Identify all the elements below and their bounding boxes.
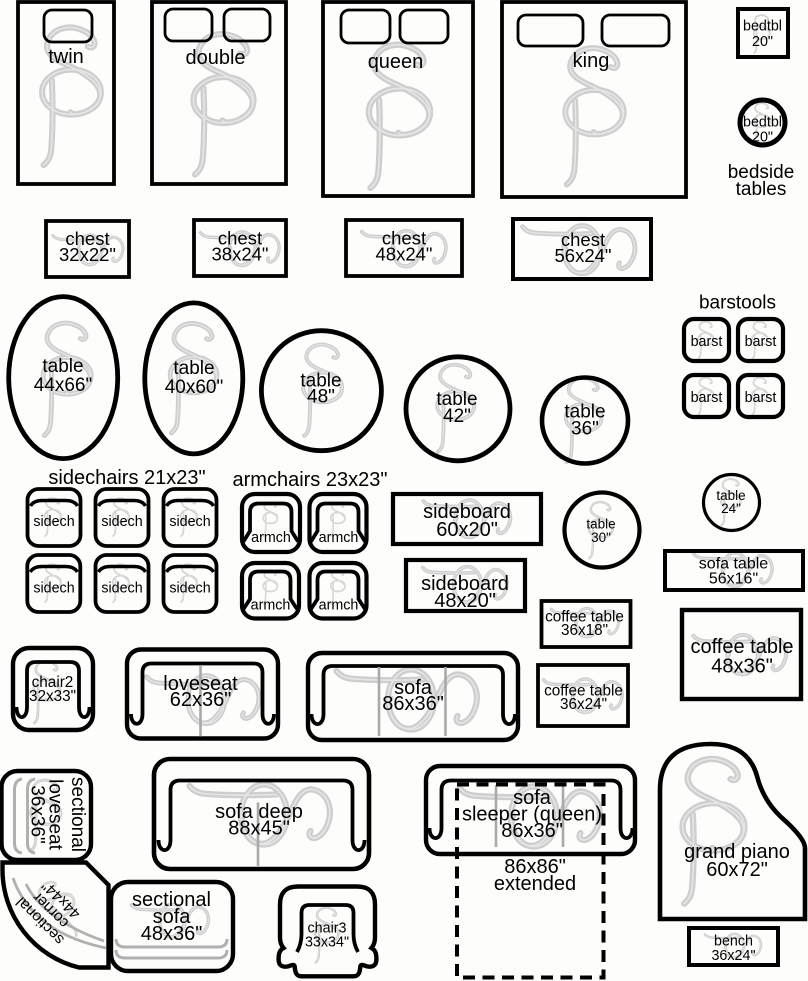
svg-text:56x24": 56x24"	[555, 245, 612, 266]
svg-text:table: table	[42, 356, 83, 377]
svg-text:tables: tables	[736, 179, 787, 200]
svg-text:48x36": 48x36"	[141, 923, 203, 945]
svg-text:extended: extended	[494, 873, 576, 895]
svg-text:48x36": 48x36"	[711, 656, 773, 678]
svg-text:queen: queen	[368, 51, 424, 73]
svg-text:barst: barst	[745, 334, 777, 350]
svg-text:barst: barst	[691, 390, 723, 406]
svg-text:36x24": 36x24"	[560, 696, 607, 713]
svg-text:20": 20"	[752, 34, 773, 50]
svg-text:44x66": 44x66"	[34, 375, 93, 396]
svg-text:armch: armch	[251, 530, 291, 546]
svg-text:barstools: barstools	[699, 293, 776, 314]
svg-text:20": 20"	[752, 130, 773, 146]
svg-text:33x34": 33x34"	[305, 935, 349, 951]
svg-text:sidech: sidech	[169, 514, 210, 530]
svg-text:86x36": 86x36"	[501, 820, 563, 842]
svg-text:sidech: sidech	[33, 514, 74, 530]
svg-text:twin: twin	[48, 46, 84, 68]
svg-text:36x36": 36x36"	[27, 785, 48, 844]
svg-text:bedtbl: bedtbl	[743, 115, 782, 131]
svg-text:sidech: sidech	[33, 581, 74, 597]
svg-text:48x20": 48x20"	[434, 590, 496, 612]
svg-text:36x24": 36x24"	[711, 948, 755, 964]
svg-text:36": 36"	[571, 419, 599, 440]
svg-text:king: king	[573, 50, 610, 72]
svg-text:38x24": 38x24"	[212, 244, 269, 265]
svg-text:sectional: sectional	[67, 777, 88, 852]
svg-text:86x36": 86x36"	[382, 693, 444, 715]
svg-text:armch: armch	[319, 530, 359, 546]
svg-text:60x20": 60x20"	[436, 519, 498, 541]
svg-text:table: table	[173, 358, 214, 379]
svg-text:sidech: sidech	[101, 581, 142, 597]
svg-text:48": 48"	[307, 387, 335, 408]
svg-text:armch: armch	[319, 598, 359, 614]
svg-text:48x24": 48x24"	[376, 244, 433, 265]
svg-text:barst: barst	[745, 390, 777, 406]
svg-text:32x22": 32x22"	[59, 244, 116, 265]
svg-text:sidech: sidech	[169, 581, 210, 597]
svg-text:62x36": 62x36"	[170, 689, 232, 711]
svg-text:24": 24"	[721, 501, 741, 516]
svg-text:30": 30"	[591, 530, 611, 545]
svg-text:40x60": 40x60"	[165, 377, 224, 398]
svg-text:armchairs 23x23": armchairs 23x23"	[233, 469, 388, 491]
svg-text:sidechairs 21x23": sidechairs 21x23"	[48, 467, 205, 489]
svg-text:sidech: sidech	[101, 514, 142, 530]
svg-text:barst: barst	[691, 334, 723, 350]
svg-text:56x16": 56x16"	[709, 571, 758, 588]
svg-text:double: double	[185, 47, 245, 69]
svg-text:32x33": 32x33"	[29, 688, 76, 705]
svg-text:bedtbl: bedtbl	[743, 19, 782, 35]
svg-text:36x18": 36x18"	[561, 622, 608, 639]
svg-text:88x45": 88x45"	[228, 818, 290, 840]
svg-text:42": 42"	[443, 406, 471, 427]
svg-text:armch: armch	[251, 598, 291, 614]
svg-text:60x72": 60x72"	[706, 859, 768, 881]
